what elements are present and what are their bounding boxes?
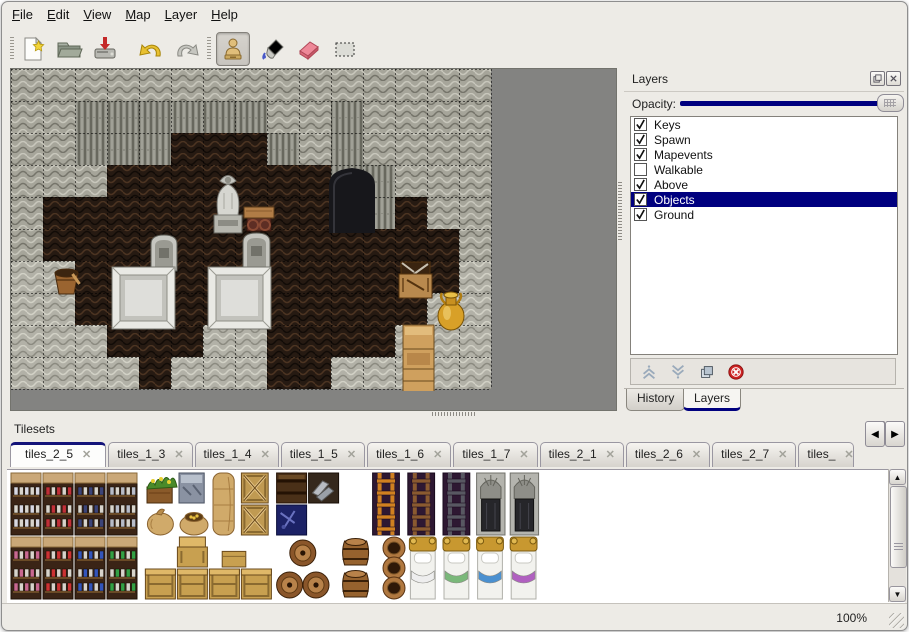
tab-scroll-right-icon[interactable]: ▶ <box>885 421 905 447</box>
tab-close-icon[interactable]: ✕ <box>844 449 853 461</box>
layer-visibility-checkbox[interactable] <box>634 193 647 206</box>
layer-row-mapevents[interactable]: Mapevents <box>631 147 897 162</box>
layers-dock-title: Layers <box>632 72 668 86</box>
tileset-tab-label: tiles_1_7 <box>462 447 510 461</box>
move-layer-down-button[interactable] <box>668 362 688 382</box>
delete-layer-button[interactable] <box>726 362 746 382</box>
move-layer-up-button[interactable] <box>639 362 659 382</box>
vertical-splitter-handle[interactable] <box>618 182 622 242</box>
select-tool-button[interactable] <box>328 32 362 66</box>
redo-button[interactable] <box>170 32 204 66</box>
layer-label: Mapevents <box>654 148 713 162</box>
tab-close-icon[interactable]: ✕ <box>347 449 356 461</box>
delete-icon <box>727 363 745 381</box>
tilesets-dock-titlebar: Tilesets <box>6 418 907 440</box>
tileset-tab-label: tiles_1_3 <box>117 447 165 461</box>
save-button[interactable] <box>88 32 122 66</box>
scroll-up-icon[interactable]: ▲ <box>889 469 906 485</box>
menu-item-help[interactable]: Help <box>211 7 238 22</box>
tileset-tab-label: tiles_1_6 <box>376 447 424 461</box>
tileset-viewport[interactable] <box>7 469 905 603</box>
tab-close-icon[interactable]: ✕ <box>261 449 270 461</box>
layers-dock-titlebar: Layers <box>624 68 904 92</box>
dock-tab-layers[interactable]: Layers <box>683 389 741 411</box>
tileset-tab-label: tiles_2_6 <box>635 447 683 461</box>
zoom-level: 100% <box>836 611 867 625</box>
tab-scroll-left-icon[interactable]: ◀ <box>865 421 885 447</box>
scrollbar-thumb[interactable] <box>890 486 907 568</box>
stamp-tool-button[interactable] <box>216 32 250 66</box>
layers-dock: Layers Opacity: KeysSpawnMapeventsWalkab… <box>624 68 904 410</box>
menu-bar: FileEditViewMapLayerHelp <box>12 7 252 27</box>
tileset-tab-tiles_1_5[interactable]: tiles_1_5✕ <box>281 442 365 467</box>
layer-label: Spawn <box>654 133 691 147</box>
opacity-slider-track[interactable] <box>680 101 902 106</box>
toolbar-drag-handle[interactable] <box>207 37 211 61</box>
save-icon <box>91 35 119 63</box>
tab-close-icon[interactable]: ✕ <box>174 449 183 461</box>
layer-visibility-checkbox[interactable] <box>634 148 647 161</box>
tilesets-dock-title: Tilesets <box>14 422 55 436</box>
tileset-tab-tiles_2_5[interactable]: tiles_2_5✕ <box>10 442 106 467</box>
tileset-tab-label: tiles_1_5 <box>290 447 338 461</box>
dock-tabs: HistoryLayers <box>624 388 904 411</box>
tileset-tab-tiles_1_7[interactable]: tiles_1_7✕ <box>453 442 537 467</box>
opacity-label: Opacity: <box>632 97 676 111</box>
chevron-up-icon <box>640 363 658 381</box>
tileset-scrollbar[interactable]: ▲ ▼ <box>888 469 906 602</box>
layer-visibility-checkbox[interactable] <box>634 118 647 131</box>
float-dock-icon[interactable] <box>870 71 885 86</box>
new-document-icon <box>19 35 47 63</box>
tileset-canvas[interactable] <box>10 472 542 601</box>
tileset-tab-tiles_2_7[interactable]: tiles_2_7✕ <box>712 442 796 467</box>
eraser-icon <box>295 35 323 63</box>
tab-close-icon[interactable]: ✕ <box>519 449 528 461</box>
menu-item-map[interactable]: Map <box>125 7 150 22</box>
tileset-tab-tiles_2_1[interactable]: tiles_2_1✕ <box>540 442 624 467</box>
tileset-tab-label: tiles_2_5 <box>25 447 73 461</box>
layer-list: KeysSpawnMapeventsWalkableAboveObjectsGr… <box>630 116 898 355</box>
dock-tab-history[interactable]: History <box>626 389 685 411</box>
layer-row-ground[interactable]: Ground <box>631 207 897 222</box>
layer-buttons-bar <box>630 358 896 385</box>
layer-label: Above <box>654 178 688 192</box>
chevron-down-icon <box>669 363 687 381</box>
tab-close-icon[interactable]: ✕ <box>606 449 615 461</box>
eraser-tool-button[interactable] <box>292 32 326 66</box>
tileset-tab-label: tiles_2_7 <box>721 447 769 461</box>
layer-visibility-checkbox[interactable] <box>634 178 647 191</box>
layer-label: Walkable <box>654 163 703 177</box>
menu-item-view[interactable]: View <box>83 7 111 22</box>
tileset-tab-tiles_1_6[interactable]: tiles_1_6✕ <box>367 442 451 467</box>
duplicate-icon <box>698 363 716 381</box>
layer-row-objects[interactable]: Objects <box>631 192 897 207</box>
tab-close-icon[interactable]: ✕ <box>778 449 787 461</box>
duplicate-layer-button[interactable] <box>697 362 717 382</box>
rect-select-icon <box>331 35 359 63</box>
layer-row-walkable[interactable]: Walkable <box>631 162 897 177</box>
layer-row-above[interactable]: Above <box>631 177 897 192</box>
new-button[interactable] <box>16 32 50 66</box>
tab-close-icon[interactable]: ✕ <box>82 449 91 461</box>
map-canvas[interactable] <box>11 69 492 391</box>
fill-bucket-icon <box>259 35 287 63</box>
layer-label: Objects <box>654 193 695 207</box>
tileset-tab-label: tiles_ <box>807 447 835 461</box>
layer-label: Ground <box>654 208 694 222</box>
layer-visibility-checkbox[interactable] <box>634 208 647 221</box>
tileset-tab-tiles[interactable]: tiles_✕ <box>798 442 854 467</box>
tileset-tab-tiles_1_3[interactable]: tiles_1_3✕ <box>108 442 192 467</box>
fill-tool-button[interactable] <box>256 32 290 66</box>
tileset-tab-label: tiles_1_4 <box>204 447 252 461</box>
undo-button[interactable] <box>134 32 168 66</box>
screen: FileEditViewMapLayerHelp Layers Opacity:… <box>0 0 909 632</box>
tileset-tab-bar: tiles_2_5✕tiles_1_3✕tiles_1_4✕tiles_1_5✕… <box>10 442 865 470</box>
status-bar: 100% <box>2 603 907 631</box>
tab-close-icon[interactable]: ✕ <box>692 449 701 461</box>
layer-visibility-checkbox[interactable] <box>634 133 647 146</box>
layer-label: Keys <box>654 118 681 132</box>
app-window: FileEditViewMapLayerHelp Layers Opacity:… <box>1 1 908 631</box>
resize-grip[interactable] <box>889 613 904 628</box>
map-viewport[interactable] <box>10 68 617 411</box>
undo-arrow-icon <box>137 35 165 63</box>
redo-arrow-icon <box>173 35 201 63</box>
opacity-slider-handle[interactable] <box>877 94 904 112</box>
horizontal-splitter-handle[interactable] <box>432 412 476 416</box>
toolbar-drag-handle[interactable] <box>10 37 14 61</box>
open-button[interactable] <box>52 32 86 66</box>
layer-row-spawn[interactable]: Spawn <box>631 132 897 147</box>
open-folder-icon <box>55 35 83 63</box>
layer-row-keys[interactable]: Keys <box>631 117 897 132</box>
tilesets-dock: Tilesets tiles_2_5✕tiles_1_3✕tiles_1_4✕t… <box>6 418 907 603</box>
layer-visibility-checkbox[interactable] <box>634 163 647 176</box>
scroll-down-icon[interactable]: ▼ <box>889 586 906 602</box>
menu-item-layer[interactable]: Layer <box>165 7 198 22</box>
tileset-tab-tiles_1_4[interactable]: tiles_1_4✕ <box>195 442 279 467</box>
tileset-tab-tiles_2_6[interactable]: tiles_2_6✕ <box>626 442 710 467</box>
menu-item-edit[interactable]: Edit <box>47 7 69 22</box>
stamp-tool-icon <box>219 35 247 63</box>
tab-close-icon[interactable]: ✕ <box>433 449 442 461</box>
menu-item-file[interactable]: File <box>12 7 33 22</box>
close-dock-icon[interactable] <box>886 71 901 86</box>
toolbar <box>2 29 907 67</box>
tileset-tab-label: tiles_2_1 <box>549 447 597 461</box>
